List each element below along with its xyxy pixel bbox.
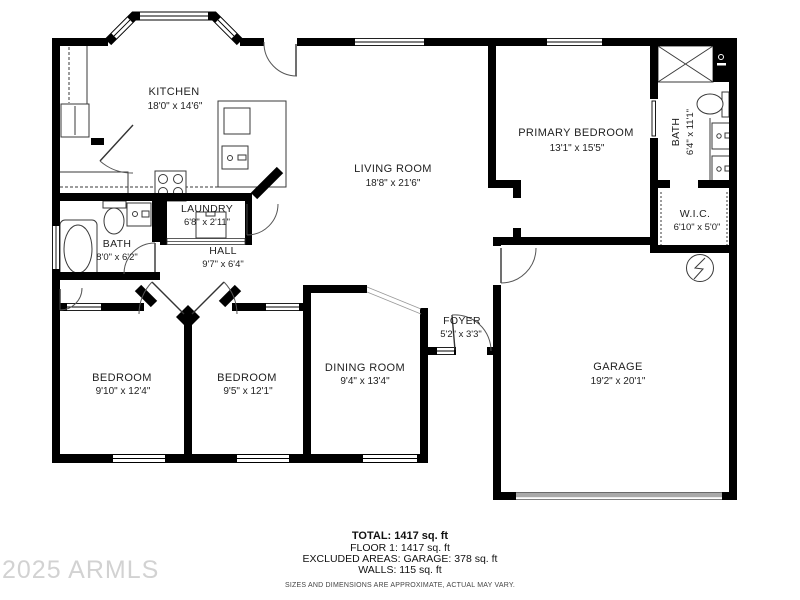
room-label-foyer: FOYER bbox=[443, 315, 481, 327]
dining-wall-east bbox=[420, 308, 428, 457]
kitchen-fixtures bbox=[60, 46, 286, 201]
laundry-wall-stub bbox=[160, 238, 167, 245]
room-label-dining-room: DINING ROOM bbox=[325, 362, 405, 374]
pantry-door-leaf bbox=[100, 125, 133, 161]
floor-plan: KITCHEN 18'0" x 14'6" LIVING ROOM 18'8" … bbox=[0, 0, 800, 600]
exterior-wall-top bbox=[240, 38, 264, 46]
toilet-icon bbox=[104, 208, 124, 234]
pantry-door-arc bbox=[100, 161, 133, 173]
pantry-wall-stub bbox=[91, 138, 104, 145]
room-label-garage: GARAGE bbox=[593, 361, 642, 373]
room-label-hall-bath: BATH bbox=[103, 238, 131, 250]
door-center-post bbox=[176, 305, 200, 329]
patio-door-arc bbox=[264, 42, 297, 76]
pocket-door bbox=[652, 101, 656, 136]
hall-bath-wall-east bbox=[152, 201, 160, 242]
bath-sink-icon bbox=[127, 203, 151, 226]
laundry-wall-west bbox=[160, 201, 167, 240]
dining-wall-north bbox=[303, 285, 367, 293]
room-dims-foyer: 5'2" x 3'3" bbox=[440, 329, 482, 340]
room-dims-hall: 9'7" x 6'4" bbox=[202, 259, 244, 270]
armls-watermark: 2025 ARMLS bbox=[2, 556, 159, 585]
room-dims-wic: 6'10" x 5'0" bbox=[674, 222, 721, 233]
laundry-wall-east bbox=[245, 193, 252, 240]
island-square bbox=[224, 108, 250, 134]
room-label-primary-bedroom: PRIMARY BEDROOM bbox=[518, 127, 634, 139]
bedroom1-door-leaf bbox=[152, 282, 184, 314]
archway-line bbox=[367, 292, 421, 314]
primary-bath-wall bbox=[650, 138, 658, 188]
wic-wall-south bbox=[650, 245, 732, 253]
floor-plan-page: KITCHEN 18'0" x 14'6" LIVING ROOM 18'8" … bbox=[0, 0, 800, 600]
room-dims-primary-bedroom: 13'1" x 15'5" bbox=[550, 143, 605, 154]
room-label-bedroom-1: BEDROOM bbox=[92, 372, 152, 384]
room-dims-living-room: 18'8" x 21'6" bbox=[366, 178, 421, 189]
bedroom-divider-wall bbox=[184, 314, 192, 457]
room-label-bedroom-2: BEDROOM bbox=[217, 372, 277, 384]
bathtub-icon bbox=[60, 220, 97, 278]
room-dims-bedroom-1: 9'10" x 12'4" bbox=[96, 386, 151, 397]
garage-entry-opening bbox=[493, 246, 501, 285]
kitchen-sink-icon bbox=[222, 146, 248, 169]
primary-entry-wall bbox=[513, 228, 521, 240]
primary-bath-wall bbox=[650, 45, 658, 99]
wic-fixtures bbox=[661, 192, 727, 249]
hall-bath-wall-south bbox=[52, 272, 160, 280]
niche-shelf bbox=[717, 63, 726, 66]
bath-wic-divider bbox=[698, 180, 737, 188]
room-dims-dining-room: 9'4" x 13'4" bbox=[340, 376, 390, 387]
room-dims-primary-bath: 6'4" x 11'1" bbox=[685, 109, 696, 155]
toilet-icon bbox=[697, 94, 723, 114]
garage-fixtures bbox=[687, 255, 714, 282]
room-label-wic: W.I.C. bbox=[680, 208, 710, 220]
room-label-kitchen: KITCHEN bbox=[148, 86, 199, 98]
counter-corner bbox=[60, 172, 128, 193]
room-label-hall: HALL bbox=[209, 245, 236, 257]
archway-line bbox=[367, 287, 421, 309]
toilet-tank bbox=[103, 201, 126, 208]
room-dims-garage: 19'2" x 20'1" bbox=[591, 376, 646, 387]
bedroom2-door-leaf bbox=[192, 282, 224, 314]
room-dims-kitchen: 18'0" x 14'6" bbox=[148, 101, 203, 112]
garage-entry-door-arc bbox=[501, 248, 536, 283]
room-label-primary-bath: BATH bbox=[670, 118, 682, 146]
room-dims-hall-bath: 8'0" x 6'2" bbox=[96, 252, 138, 263]
room-label-living-room: LIVING ROOM bbox=[354, 163, 432, 175]
exterior-wall-top bbox=[52, 38, 108, 46]
summary-total: TOTAL: 1417 sq. ft bbox=[0, 531, 800, 543]
primary-entry-wall bbox=[513, 188, 521, 198]
water-heater-icon bbox=[687, 255, 714, 282]
room-dims-bedroom-2: 9'5" x 12'1" bbox=[223, 386, 273, 397]
room-label-laundry: LAUNDRY bbox=[181, 203, 233, 215]
wic-wall-west bbox=[650, 180, 658, 253]
kitchen-wall-south bbox=[52, 193, 252, 201]
room-dims-laundry: 6'8" x 2'11" bbox=[184, 217, 230, 228]
living-primary-divider bbox=[488, 38, 496, 185]
primary-jog-wall bbox=[488, 180, 521, 188]
laundry-wall-stub bbox=[245, 238, 252, 245]
exterior-wall-right bbox=[729, 38, 737, 500]
